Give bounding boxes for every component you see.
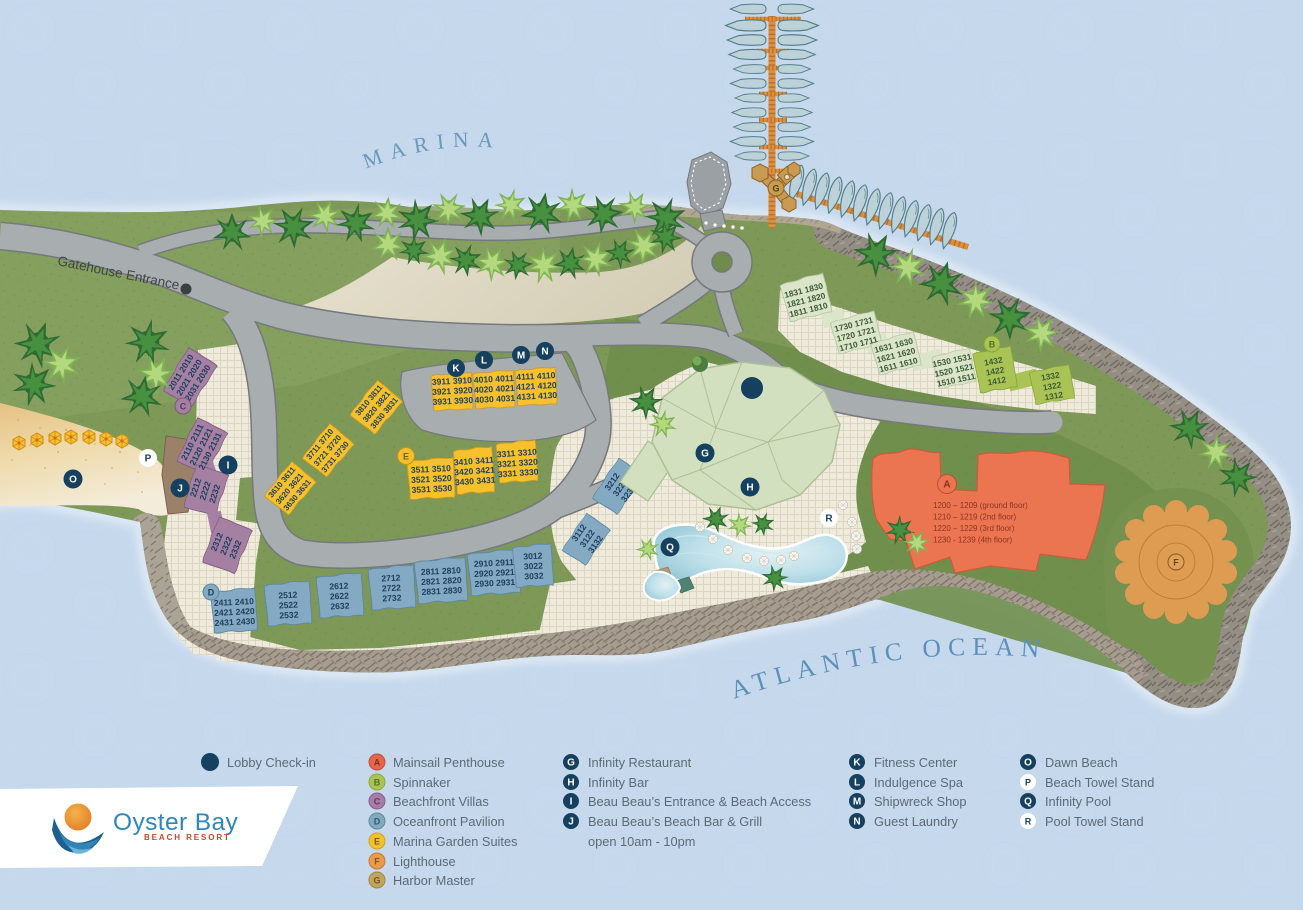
svg-text:261226222632: 261226222632 [329,580,350,611]
svg-text:Fitness Center: Fitness Center [874,755,958,770]
svg-text:J: J [177,484,183,495]
svg-text:Marina Garden Suites: Marina Garden Suites [393,834,517,849]
svg-text:3311 33103321 33203331 3330: 3311 33103321 33203331 3330 [496,447,539,480]
svg-text:R: R [825,514,833,525]
svg-text:Beachfront Villas: Beachfront Villas [393,794,489,809]
svg-text:O: O [69,475,77,486]
svg-text:R: R [1025,817,1032,827]
svg-text:Beau Beau’s Entrance & Beach A: Beau Beau’s Entrance & Beach Access [588,794,811,809]
svg-text:Beach Towel Stand: Beach Towel Stand [1045,775,1154,790]
svg-text:D: D [374,817,381,827]
svg-text:E: E [403,452,409,462]
svg-text:2411 24102421 24202431 2430: 2411 24102421 24202431 2430 [213,596,255,628]
svg-text:Shipwreck Shop: Shipwreck Shop [874,794,966,809]
svg-text:Guest Laundry: Guest Laundry [874,814,959,829]
svg-text:I: I [570,797,573,808]
svg-text:Beau Beau’s Beach Bar & Grill: Beau Beau’s Beach Bar & Grill [588,814,762,829]
svg-text:B: B [989,340,996,350]
svg-text:2811 28102821 28202831 2830: 2811 28102821 28202831 2830 [420,565,462,597]
svg-text:E: E [374,837,380,847]
svg-text:4111 41104121 41204131 4130: 4111 41104121 41204131 4130 [515,370,557,402]
svg-text:G: G [373,876,380,886]
svg-text:A: A [374,758,381,768]
svg-text:271227222732: 271227222732 [381,572,402,603]
svg-text:Spinnaker: Spinnaker [393,775,451,790]
svg-text:K: K [853,758,861,769]
svg-text:M: M [853,797,861,808]
svg-text:Infinity Restaurant: Infinity Restaurant [588,755,692,770]
svg-text:D: D [208,588,215,598]
svg-text:Infinity Pool: Infinity Pool [1045,794,1111,809]
svg-text:C: C [374,797,381,807]
svg-text:4010 40114020 40214030 4031: 4010 40114020 40214030 4031 [473,373,515,405]
svg-text:Mainsail Penthouse: Mainsail Penthouse [393,755,505,770]
svg-text:G: G [567,758,575,769]
svg-text:I: I [227,461,230,472]
svg-text:F: F [1173,558,1179,568]
svg-text:B: B [374,778,381,788]
svg-text:301230223032: 301230223032 [523,550,544,581]
svg-text:Lobby Check-in: Lobby Check-in [227,755,316,770]
svg-text:N: N [541,347,548,358]
svg-text:Dawn Beach: Dawn Beach [1045,755,1118,770]
svg-text:F: F [374,857,380,867]
svg-text:Q: Q [1024,797,1032,808]
svg-text:A: A [943,480,950,491]
svg-text:3911 39103921 39203931 3930: 3911 39103921 39203931 3930 [431,375,473,407]
svg-text:J: J [568,817,574,828]
svg-text:H: H [567,778,574,789]
svg-text:Lighthouse: Lighthouse [393,854,456,869]
svg-text:C: C [180,402,187,412]
svg-text:K: K [452,364,460,375]
svg-text:3511 35103521 35203531 3530: 3511 35103521 35203531 3530 [410,463,452,495]
svg-text:L: L [481,356,487,367]
svg-text:M: M [517,351,525,362]
svg-text:Oyster Bay: Oyster Bay [113,809,239,836]
svg-text:O: O [1024,758,1032,769]
svg-text:H: H [746,483,753,494]
svg-text:P: P [145,454,152,465]
svg-text:open 10am - 10pm: open 10am - 10pm [588,834,695,849]
svg-text:Pool Towel Stand: Pool Towel Stand [1045,814,1144,829]
svg-text:2910 29112920 29212930 2931: 2910 29112920 29212930 2931 [473,557,515,589]
svg-text:Indulgence Spa: Indulgence Spa [874,775,964,790]
svg-text:G: G [772,184,779,194]
svg-text:Harbor Master: Harbor Master [393,873,476,888]
svg-text:251225222532: 251225222532 [278,589,299,620]
svg-text:Q: Q [666,543,674,554]
svg-text:Oceanfront Pavilion: Oceanfront Pavilion [393,814,505,829]
svg-text:G: G [701,449,709,460]
svg-text:L: L [854,778,860,789]
svg-text:N: N [853,817,860,828]
svg-text:BEACH RESORT: BEACH RESORT [144,833,231,842]
svg-text:P: P [1025,778,1031,788]
svg-text:3410 34113420 34213430 3431: 3410 34113420 34213430 3431 [453,455,496,488]
svg-text:Infinity Bar: Infinity Bar [588,775,649,790]
